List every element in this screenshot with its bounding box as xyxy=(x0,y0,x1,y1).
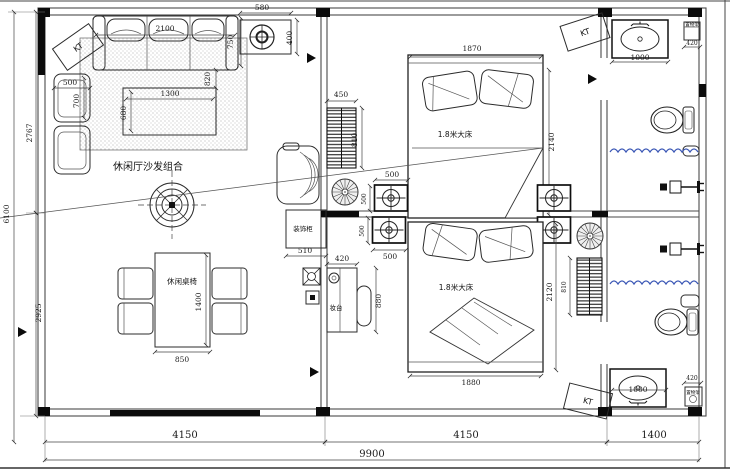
dim-overall-width: 9900 xyxy=(359,449,384,460)
ac-unit-left-bottom xyxy=(373,217,406,243)
dim-dresser-h: 880 xyxy=(374,294,383,309)
dim-ac-left-b: 500 xyxy=(359,225,366,237)
dresser-stool xyxy=(357,286,371,326)
ac-unit-left-top xyxy=(375,185,408,211)
marker-triangle xyxy=(18,327,27,337)
bed-2: 1.8米大床 xyxy=(408,222,543,372)
dim-fanbox-w: 580 xyxy=(255,3,270,12)
dining-chair xyxy=(118,303,153,334)
marker-triangle xyxy=(588,74,597,84)
exhaust-fan-1 xyxy=(332,179,358,205)
radiator-shelf-2 xyxy=(577,258,602,315)
bath-top-door-opening xyxy=(599,58,609,100)
dim-bed1-w: 1870 xyxy=(462,44,481,53)
dining-chair xyxy=(212,268,247,299)
dim-shelf-top: 420 xyxy=(686,40,698,47)
floor-plan-canvas: 2100 750 820 KT 500 700 1300 680 休闲厅沙发组合 xyxy=(0,0,730,473)
dim-vanity-bottom: 1000 xyxy=(628,385,647,394)
dim-table-w: 850 xyxy=(175,355,190,364)
entry-sliding-door xyxy=(110,410,260,416)
dim-armchair-w: 500 xyxy=(63,78,78,87)
toilet-top xyxy=(651,107,694,133)
dim-rad1-w: 450 xyxy=(334,90,349,99)
towel-holder-bottom xyxy=(681,295,699,307)
dim-rad2-h: 810 xyxy=(561,281,568,293)
dim-bed2-w: 1880 xyxy=(461,378,480,387)
dresser-label: 妆台 xyxy=(330,303,343,312)
exhaust-fan-2 xyxy=(577,223,603,249)
shower-curtain-bottom xyxy=(610,281,698,284)
shelf-top-label: 置物架 xyxy=(685,21,699,28)
dim-coffee-w: 1300 xyxy=(160,89,179,98)
electrical-symbol-1 xyxy=(303,268,320,285)
dim-ac-top: 500 xyxy=(385,170,400,179)
kt-label-top-right: KT xyxy=(579,27,591,39)
marker-triangle xyxy=(307,53,316,63)
desk-chair xyxy=(277,143,319,204)
dim-bottom-seg3: 1400 xyxy=(641,430,666,441)
living-sofa-group-label: 休闲厅沙发组合 xyxy=(113,160,183,173)
dim-coffee-d: 680 xyxy=(119,106,128,121)
dining-chair xyxy=(118,268,153,299)
dresser: 妆台 xyxy=(327,268,371,332)
dim-bottom-seg1: 4150 xyxy=(172,430,197,441)
dining-chair xyxy=(212,303,247,334)
kt-label-bottom-right: KT xyxy=(582,396,594,407)
dining-label: 休闲桌椅 xyxy=(167,276,197,286)
dim-ac-bottom: 500 xyxy=(383,252,398,261)
bed1-label: 1.8米大床 xyxy=(438,129,473,139)
dim-rad1-h: 810 xyxy=(350,133,359,148)
dim-left-upper: 2767 xyxy=(25,123,34,142)
floor-plan-drawing: 2100 750 820 KT 500 700 1300 680 休闲厅沙发组合 xyxy=(0,0,730,473)
cabinet-label: 装饰柜 xyxy=(293,224,313,233)
dim-cabinet-w: 510 xyxy=(298,246,313,255)
ceiling-fan xyxy=(138,171,206,239)
fan-vent-box xyxy=(240,20,291,54)
dim-armchair-d: 700 xyxy=(72,94,81,109)
ac-unit-right-top xyxy=(538,185,571,211)
electrical-symbol-2 xyxy=(306,291,319,304)
toilet-bottom xyxy=(655,309,698,335)
decor-cabinet: 装饰柜 xyxy=(286,210,326,248)
dim-overall-height: 6100 xyxy=(2,204,11,223)
shower-mixer-bottom xyxy=(660,243,704,255)
dim-vanity-top: 1000 xyxy=(630,53,649,62)
bath-bottom-door-opening xyxy=(599,322,609,364)
dim-left-lower: 2925 xyxy=(34,303,43,322)
dim-dresser-w: 420 xyxy=(335,254,350,263)
living-room: 2100 750 820 KT 500 700 1300 680 休闲厅沙发组合 xyxy=(18,3,326,377)
dim-bed1-l: 2140 xyxy=(547,132,556,151)
dim-sofa-width: 2100 xyxy=(155,24,174,33)
shower-curtain-top xyxy=(610,149,698,152)
bathroom-top: 1000 置物架 420 xyxy=(610,20,704,193)
dining-table-set: 休闲桌椅 xyxy=(118,253,247,347)
shelf-bottom-label: 置物架 xyxy=(686,389,700,396)
bed2-label: 1.8米大床 xyxy=(439,282,474,292)
kt-box-top-right: KT xyxy=(560,13,610,51)
marker-triangle xyxy=(310,367,319,377)
dim-ac-left-a: 500 xyxy=(361,193,368,205)
dim-shelf-bottom: 420 xyxy=(686,375,698,382)
dim-table-l: 1400 xyxy=(194,292,203,311)
dim-sofa-gap: 820 xyxy=(203,72,212,87)
shower-mixer-top xyxy=(660,181,704,193)
dim-sofa-depth: 750 xyxy=(226,35,235,50)
dim-fanbox-h: 400 xyxy=(285,31,294,46)
dim-bed2-l: 2120 xyxy=(545,282,554,301)
bedroom-2: 1.8米大床 1880 2120 妆台 420 880 810 xyxy=(327,222,603,387)
shelf-top: 置物架 xyxy=(684,21,700,40)
dim-bottom-seg2: 4150 xyxy=(453,430,478,441)
